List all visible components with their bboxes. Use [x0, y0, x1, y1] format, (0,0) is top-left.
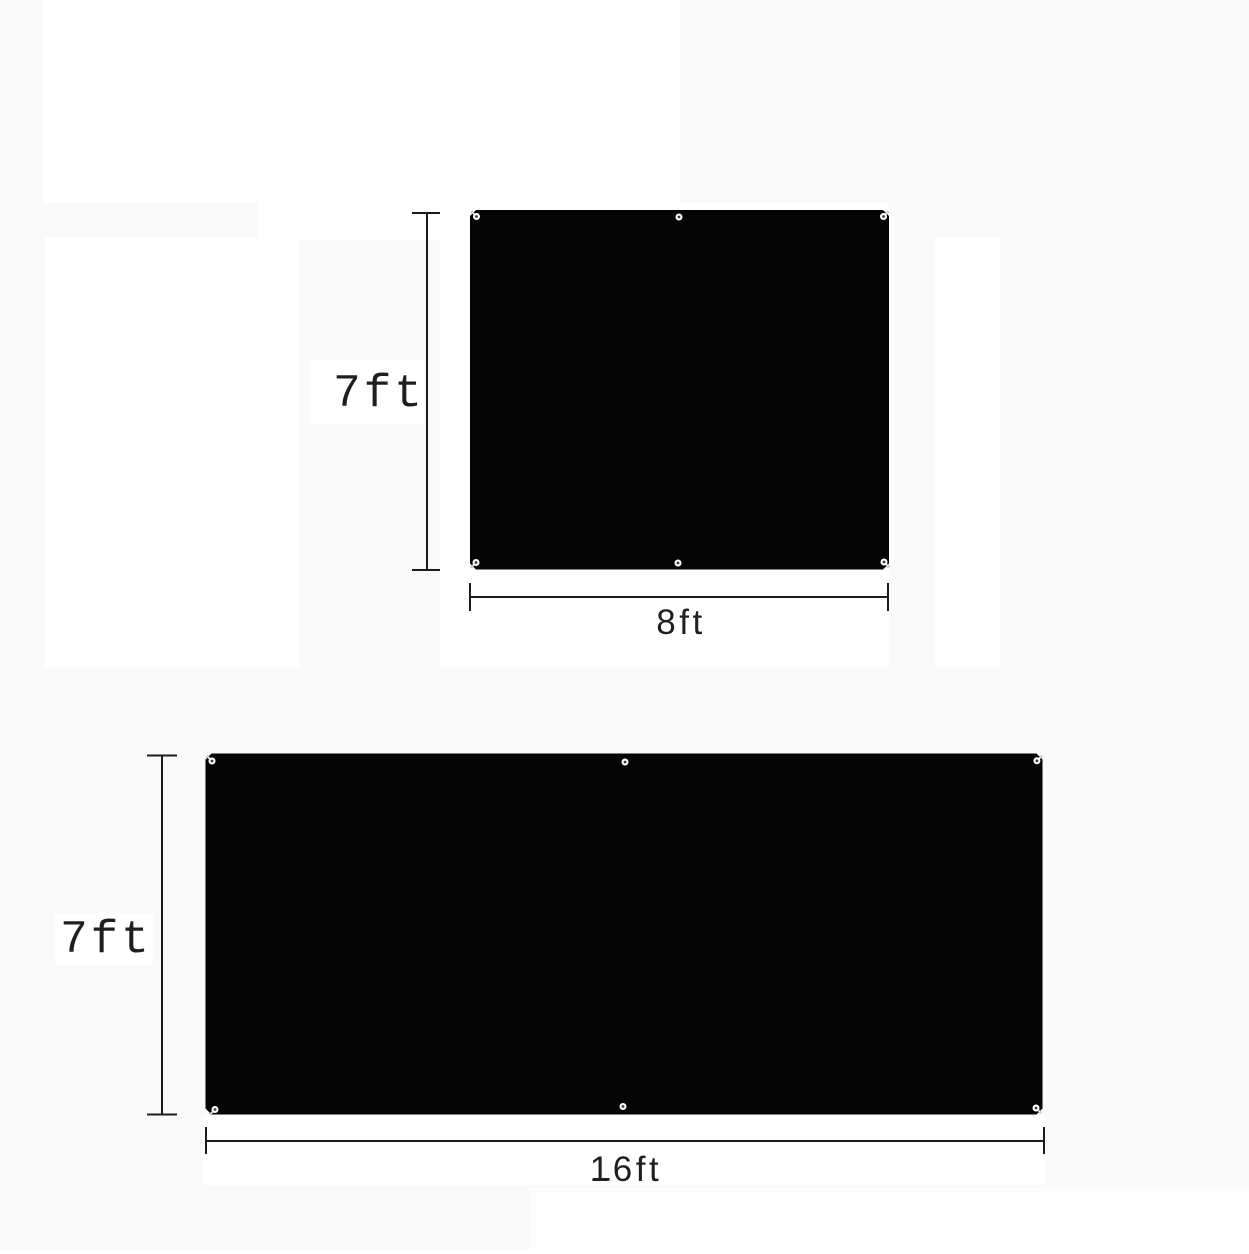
svg-text:8ft: 8ft — [656, 603, 705, 642]
svg-text:16ft: 16ft — [590, 1150, 662, 1189]
svg-text:7ft: 7ft — [333, 368, 425, 420]
svg-text:7ft: 7ft — [60, 914, 152, 966]
